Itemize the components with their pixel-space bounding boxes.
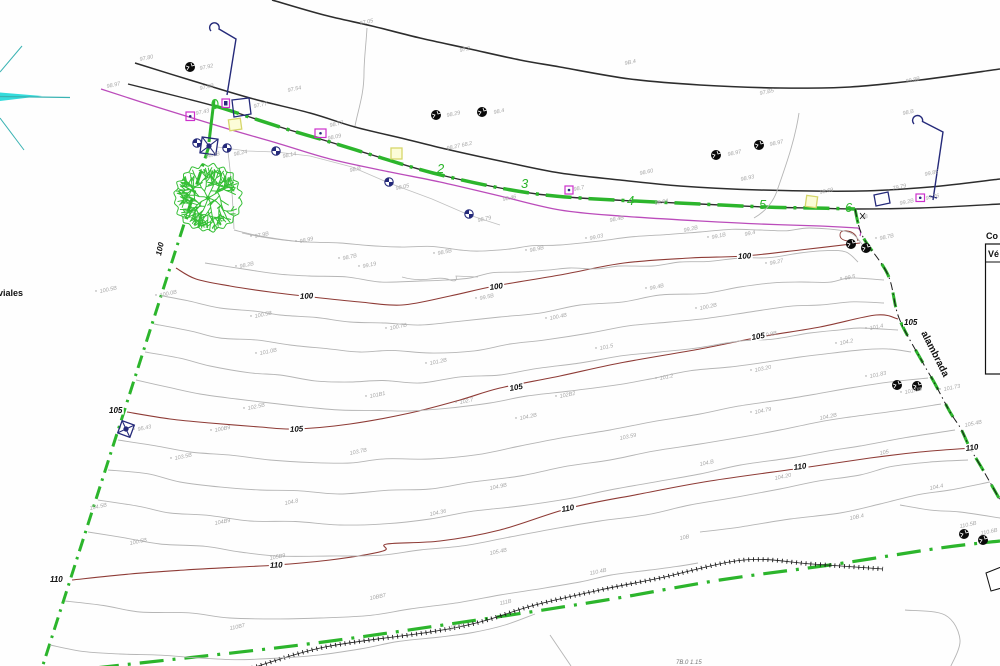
svg-text:100: 100	[738, 251, 752, 261]
svg-text:110: 110	[965, 442, 979, 453]
svg-text:100: 100	[489, 281, 504, 292]
svg-text:4: 4	[627, 193, 634, 208]
svg-text:3: 3	[521, 176, 529, 191]
svg-text:5: 5	[759, 197, 767, 212]
svg-text:6: 6	[845, 200, 853, 215]
svg-text:105: 105	[290, 424, 304, 434]
svg-text:105: 105	[109, 406, 123, 415]
svg-text:7B.0 1.15: 7B.0 1.15	[676, 660, 702, 666]
svg-text:110: 110	[270, 560, 284, 570]
svg-text:Co: Co	[986, 231, 998, 241]
svg-text:2: 2	[436, 161, 445, 176]
svg-text:110: 110	[50, 575, 63, 584]
svg-text:viales: viales	[0, 288, 23, 298]
svg-text:110: 110	[793, 461, 807, 472]
svg-text:Vé: Vé	[988, 249, 999, 259]
svg-text:100: 100	[300, 291, 314, 301]
svg-text:105: 105	[904, 318, 918, 327]
